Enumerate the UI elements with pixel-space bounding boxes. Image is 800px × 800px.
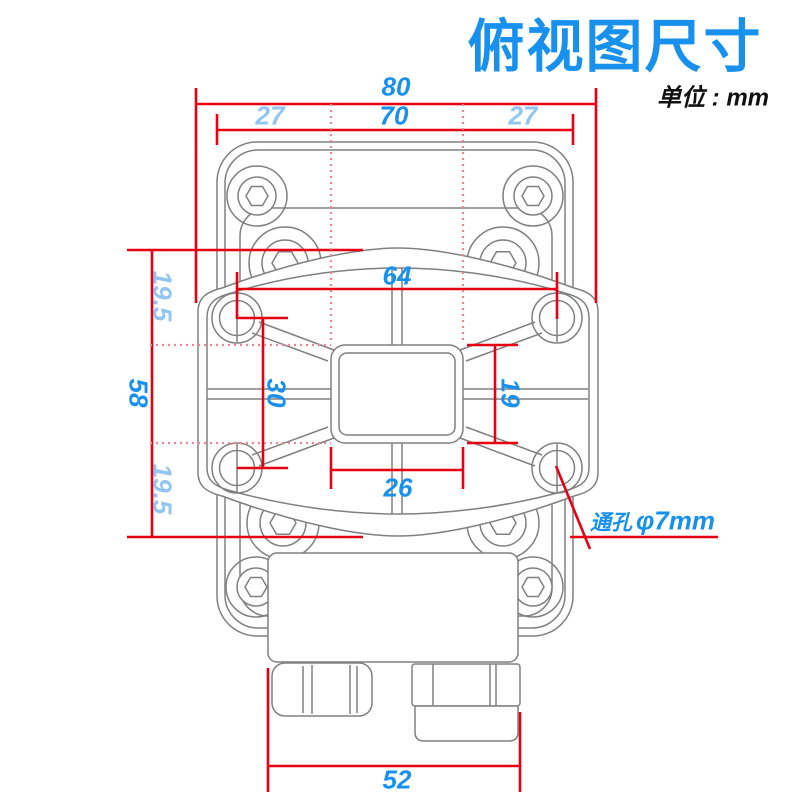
center-square <box>331 345 463 443</box>
dim-plate-width: 70 <box>380 101 409 132</box>
through-hole-size: φ7mm <box>636 506 715 537</box>
dim-offset-top: 19.5 <box>147 271 178 322</box>
dim-square-width: 26 <box>384 473 413 504</box>
unit-label: 单位 : mm <box>657 78 769 113</box>
bottom-housing <box>268 553 520 741</box>
dim-overall-width: 80 <box>382 72 411 103</box>
through-hole-label: 通孔 <box>590 507 632 537</box>
dim-offset-right: 27 <box>509 101 538 132</box>
dim-offset-left: 27 <box>256 101 285 132</box>
connector-fitting <box>412 664 520 741</box>
through-hole-note: 通孔 φ7mm <box>590 506 715 537</box>
dim-bottom-body-width: 52 <box>383 765 412 796</box>
top-view-dimension-sheet: 俯视图尺寸 单位 : mm 80 70 27 27 64 30 19 26 58… <box>0 0 800 800</box>
dim-hole-span-vertical: 30 <box>261 379 292 408</box>
hex-nut-fitting <box>272 663 372 716</box>
dim-overall-height: 58 <box>123 379 154 408</box>
dim-hole-span-horizontal: 64 <box>383 261 412 292</box>
dim-offset-bottom: 19.5 <box>147 464 178 515</box>
dim-square-height: 19 <box>495 379 526 408</box>
page-title: 俯视图尺寸 <box>468 1 763 83</box>
part-outline-layer <box>198 142 598 741</box>
